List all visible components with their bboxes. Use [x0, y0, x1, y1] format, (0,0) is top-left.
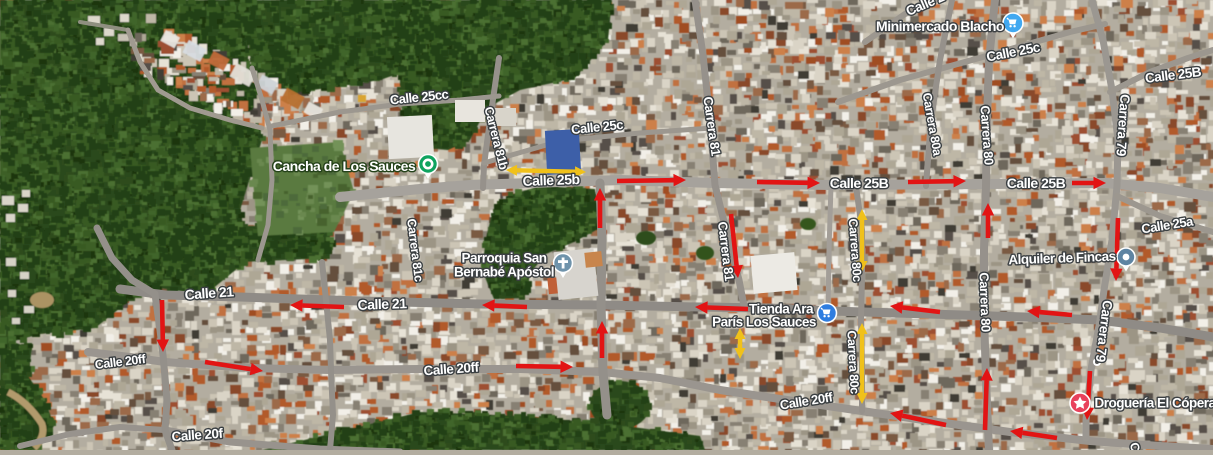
- svg-text:Carrera 80: Carrera 80: [976, 272, 993, 332]
- svg-text:Cancha de Los Sauces: Cancha de Los Sauces: [273, 158, 416, 174]
- svg-text:Minimercado Blacho: Minimercado Blacho: [876, 18, 1004, 34]
- svg-text:París Los Sauces: París Los Sauces: [712, 315, 816, 330]
- svg-text:Droguería El Cópera: Droguería El Cópera: [1094, 396, 1213, 411]
- svg-text:Parroquia San: Parroquia San: [461, 251, 546, 266]
- svg-text:Bernabé Apóstol: Bernabé Apóstol: [454, 265, 554, 280]
- svg-text:Calle 25B: Calle 25B: [830, 175, 889, 191]
- svg-text:Calle 25b: Calle 25b: [522, 171, 580, 189]
- svg-text:Calle 25B: Calle 25B: [1007, 175, 1066, 191]
- svg-text:Calle 21: Calle 21: [357, 295, 407, 313]
